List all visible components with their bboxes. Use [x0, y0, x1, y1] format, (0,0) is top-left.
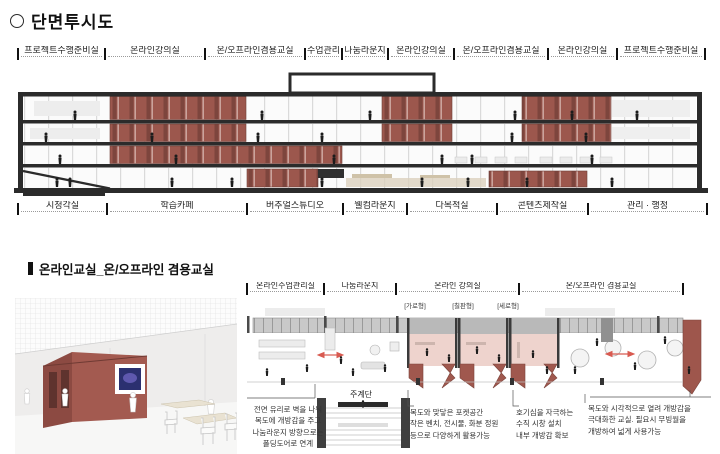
room-label: 프로젝트수행준비실 [617, 46, 705, 55]
annotation-pocket-space: 복도와 맞닿은 포켓공간 작은 벤치, 전시물, 화분 정원 등으로 다양하게 … [410, 407, 528, 441]
plan-room-label: 온/오프라인 겸용교실 [519, 282, 683, 290]
room-label-segment: 온라인강의실 [388, 44, 454, 61]
room-label: 시청각실 [18, 201, 107, 210]
room-label: 온라인강의실 [548, 46, 617, 55]
room-label: 버추얼스튜디오 [247, 201, 343, 210]
plan-label-segment: 나눔라운지 [324, 280, 396, 296]
plan-room-label: 온라인수업관리실 [247, 282, 324, 290]
plan-label-segment: 온/오프라인 겸용교실 [519, 280, 683, 296]
room-label: 관리 · 행정 [588, 201, 707, 210]
room-label: 수업관리 [305, 46, 342, 55]
room-label: 온/오프라인겸용교실 [205, 46, 305, 55]
room-label-segment: 온라인강의실 [548, 44, 617, 61]
classroom-interior-render [15, 298, 237, 454]
room-label-segment: 프로젝트수행준비실 [617, 44, 705, 61]
room-label: 학습카페 [107, 201, 247, 210]
circle-bullet-icon [10, 14, 24, 28]
room-label-segment: 관리 · 행정 [588, 199, 707, 216]
section-bottom-label-row: 시청각실 학습카페 버추얼스튜디오 웰컴라운지 다목적실 콘텐츠제작실 관리 [18, 199, 707, 216]
room-label-segment: 프로젝트수행준비실 [18, 44, 105, 61]
section-title-row: 단면투시도 [10, 8, 114, 33]
room-label-segment: 콘텐츠제작실 [497, 199, 588, 216]
title-bar-icon [28, 262, 33, 275]
room-label: 콘텐츠제작실 [497, 201, 588, 210]
building-section-drawing [0, 70, 720, 198]
plan-label-segment: 온라인 강의실 [396, 280, 519, 296]
section-top-label-row: 프로젝트수행준비실 온라인강의실 온/오프라인겸용교실 수업관리 나눔라운지 온… [18, 44, 705, 61]
room-label: 프로젝트수행준비실 [18, 46, 105, 55]
room-label: 온/오프라인겸용교실 [454, 46, 548, 55]
plan-room-label: 온라인 강의실 [396, 282, 519, 290]
room-label-segment: 버추얼스튜디오 [247, 199, 343, 216]
room-label: 온라인강의실 [105, 46, 205, 55]
plan-label-row: 온라인수업관리실 나눔라운지 온라인 강의실 온/오프라인 겸용교실 [247, 280, 683, 296]
subsection-title: 온라인교실_온/오프라인 겸용교실 [39, 259, 214, 278]
room-label-segment: 다목적실 [407, 199, 497, 216]
room-label-segment: 온라인강의실 [105, 44, 205, 61]
subsection-title-row: 온라인교실_온/오프라인 겸용교실 [28, 259, 214, 278]
section-title: 단면투시도 [31, 8, 114, 33]
room-label: 다목적실 [407, 201, 497, 210]
plan-label-segment: 온라인수업관리실 [247, 280, 324, 296]
room-label-segment: 시청각실 [18, 199, 107, 216]
room-label: 웰컴라운지 [343, 201, 407, 210]
room-label-segment: 나눔라운지 [342, 44, 388, 61]
room-label: 나눔라운지 [342, 46, 388, 55]
stair-label: 주계단 [340, 389, 382, 400]
plan-room-label: 나눔라운지 [324, 282, 396, 290]
room-label-segment: 온/오프라인겸용교실 [454, 44, 548, 61]
room-label-segment: 온/오프라인겸용교실 [205, 44, 305, 61]
annotation-folding-door: 전면 유리로 벽을 나눠 복도에 개방감을 주고 나눔라운지 방향으로는 폴딩도… [236, 404, 340, 449]
room-label-segment: 학습카페 [107, 199, 247, 216]
presentation-board: 단면투시도 프로젝트수행준비실 온라인강의실 온/오프라인겸용교실 수업관리 나… [0, 0, 720, 454]
room-label: 온라인강의실 [388, 46, 454, 55]
room-label-segment: 수업관리 [305, 44, 342, 61]
annotation-moving-wall: 복도와 시각적으로 열려 개방감을 극대화한 교실. 필요시 무빙월을 개방하여… [588, 403, 720, 437]
room-label-segment: 웰컴라운지 [343, 199, 407, 216]
